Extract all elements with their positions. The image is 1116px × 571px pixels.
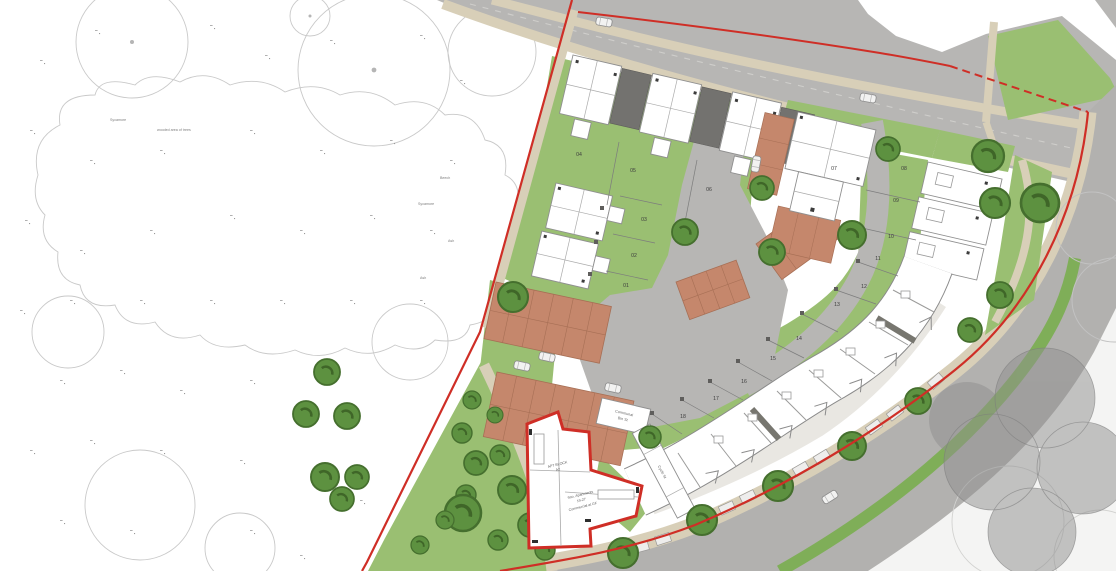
plot-label-07: 07 xyxy=(831,166,837,172)
tree xyxy=(330,487,354,511)
tree xyxy=(958,318,982,342)
tree xyxy=(1021,184,1059,222)
tree-species-tag: Sycamore xyxy=(418,202,434,206)
tree xyxy=(490,445,510,465)
plot-label-17: 17 xyxy=(713,396,719,402)
plot-label-02: 02 xyxy=(631,253,637,259)
plot-label-14: 14 xyxy=(796,336,802,342)
plot-label-04: 04 xyxy=(576,152,582,158)
tree xyxy=(488,530,508,550)
tree xyxy=(987,282,1013,308)
tree xyxy=(759,239,785,265)
tree xyxy=(452,423,472,443)
plot-label-09: 09 xyxy=(893,198,899,204)
tree xyxy=(487,407,503,423)
plot-label-16: 16 xyxy=(741,379,747,385)
tree xyxy=(980,188,1010,218)
tree xyxy=(838,221,866,249)
tree xyxy=(498,476,526,504)
tree xyxy=(639,426,661,448)
tree xyxy=(672,219,698,245)
plot-label-01: 01 xyxy=(623,283,629,289)
plot-label-11: 11 xyxy=(875,256,880,262)
tree xyxy=(314,359,340,385)
plot-label-05: 05 xyxy=(630,168,636,174)
plot-label-18: 18 xyxy=(680,414,686,420)
tree xyxy=(411,536,429,554)
survey-note: wooded area of trees xyxy=(157,128,191,132)
site-plan-image: Sycamore wooded area of trees Beech Syca… xyxy=(0,0,1116,571)
tree xyxy=(464,451,488,475)
tree xyxy=(293,401,319,427)
plot-label-08: 08 xyxy=(901,166,907,172)
tree xyxy=(750,176,774,200)
tree xyxy=(498,282,528,312)
tree xyxy=(436,511,454,529)
tree-species-tag: Beech xyxy=(440,176,450,180)
plot-label-15: 15 xyxy=(770,356,776,362)
plot-label-10: 10 xyxy=(888,234,894,240)
tree xyxy=(345,465,369,489)
tree xyxy=(687,505,717,535)
tree-species-tag: Sycamore xyxy=(110,118,126,122)
tree-species-tag: Ash xyxy=(420,276,426,280)
tree xyxy=(876,137,900,161)
plot-label-03: 03 xyxy=(641,217,647,223)
tree xyxy=(608,538,638,568)
plot-label-06: 06 xyxy=(706,187,712,193)
plot-label-12: 12 xyxy=(861,284,867,290)
tree-species-tag: Ash xyxy=(448,239,454,243)
plot-label-13: 13 xyxy=(834,302,840,308)
tree xyxy=(334,403,360,429)
tree xyxy=(311,463,339,491)
tree xyxy=(972,140,1004,172)
tree xyxy=(463,391,481,409)
site-plan-svg: Sycamore wooded area of trees Beech Syca… xyxy=(0,0,1116,571)
